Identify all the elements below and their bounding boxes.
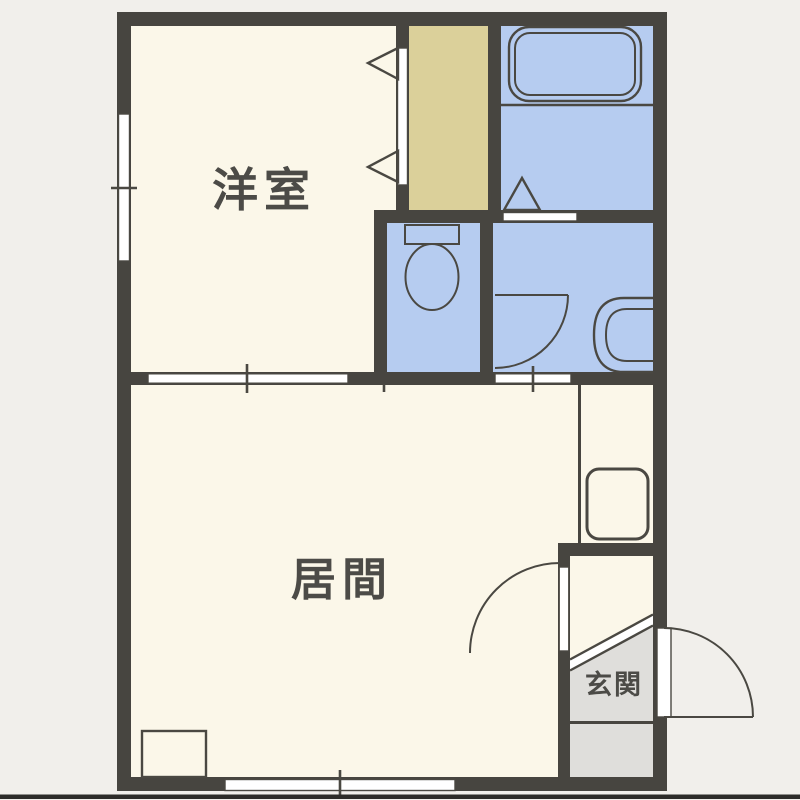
floor-plan-drawing: 洋室 居間 玄関 [0, 0, 800, 800]
wall-closet-bath [488, 26, 501, 210]
living-door-leaf [559, 567, 569, 651]
entrance-door-arc [664, 628, 753, 717]
label-western-room: 洋室 [212, 164, 316, 216]
photo-edge-line [0, 795, 800, 800]
wall-toilet-washroom [480, 223, 493, 385]
label-entrance: 玄関 [585, 669, 643, 700]
wall-top [117, 12, 667, 26]
floor-plan-canvas: 洋室 居間 玄関 [0, 0, 800, 800]
toilet-room-area [387, 223, 480, 372]
wall-room-toilet [374, 210, 387, 385]
wall-hall-top [558, 543, 667, 556]
wall-alcove-line [578, 385, 581, 543]
bath-door-opening [503, 213, 577, 222]
wall-entrance-line [570, 721, 653, 724]
closet-area [409, 26, 488, 210]
label-living-room: 居間 [291, 554, 393, 605]
entrance-door-leaf [657, 628, 671, 717]
